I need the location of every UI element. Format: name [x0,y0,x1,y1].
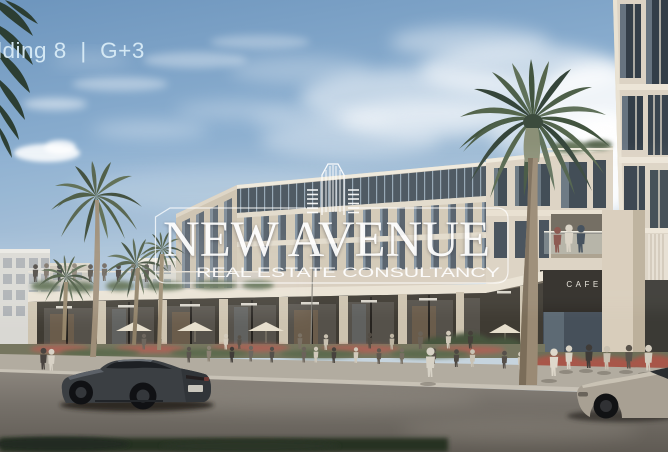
svg-text:Building 8 | G+3: Building 8 | G+3 [0,38,145,63]
svg-text:REAL ESTATE CONSULTANCY: REAL ESTATE CONSULTANCY [196,265,500,280]
svg-text:NEW AVENUE: NEW AVENUE [163,212,490,268]
